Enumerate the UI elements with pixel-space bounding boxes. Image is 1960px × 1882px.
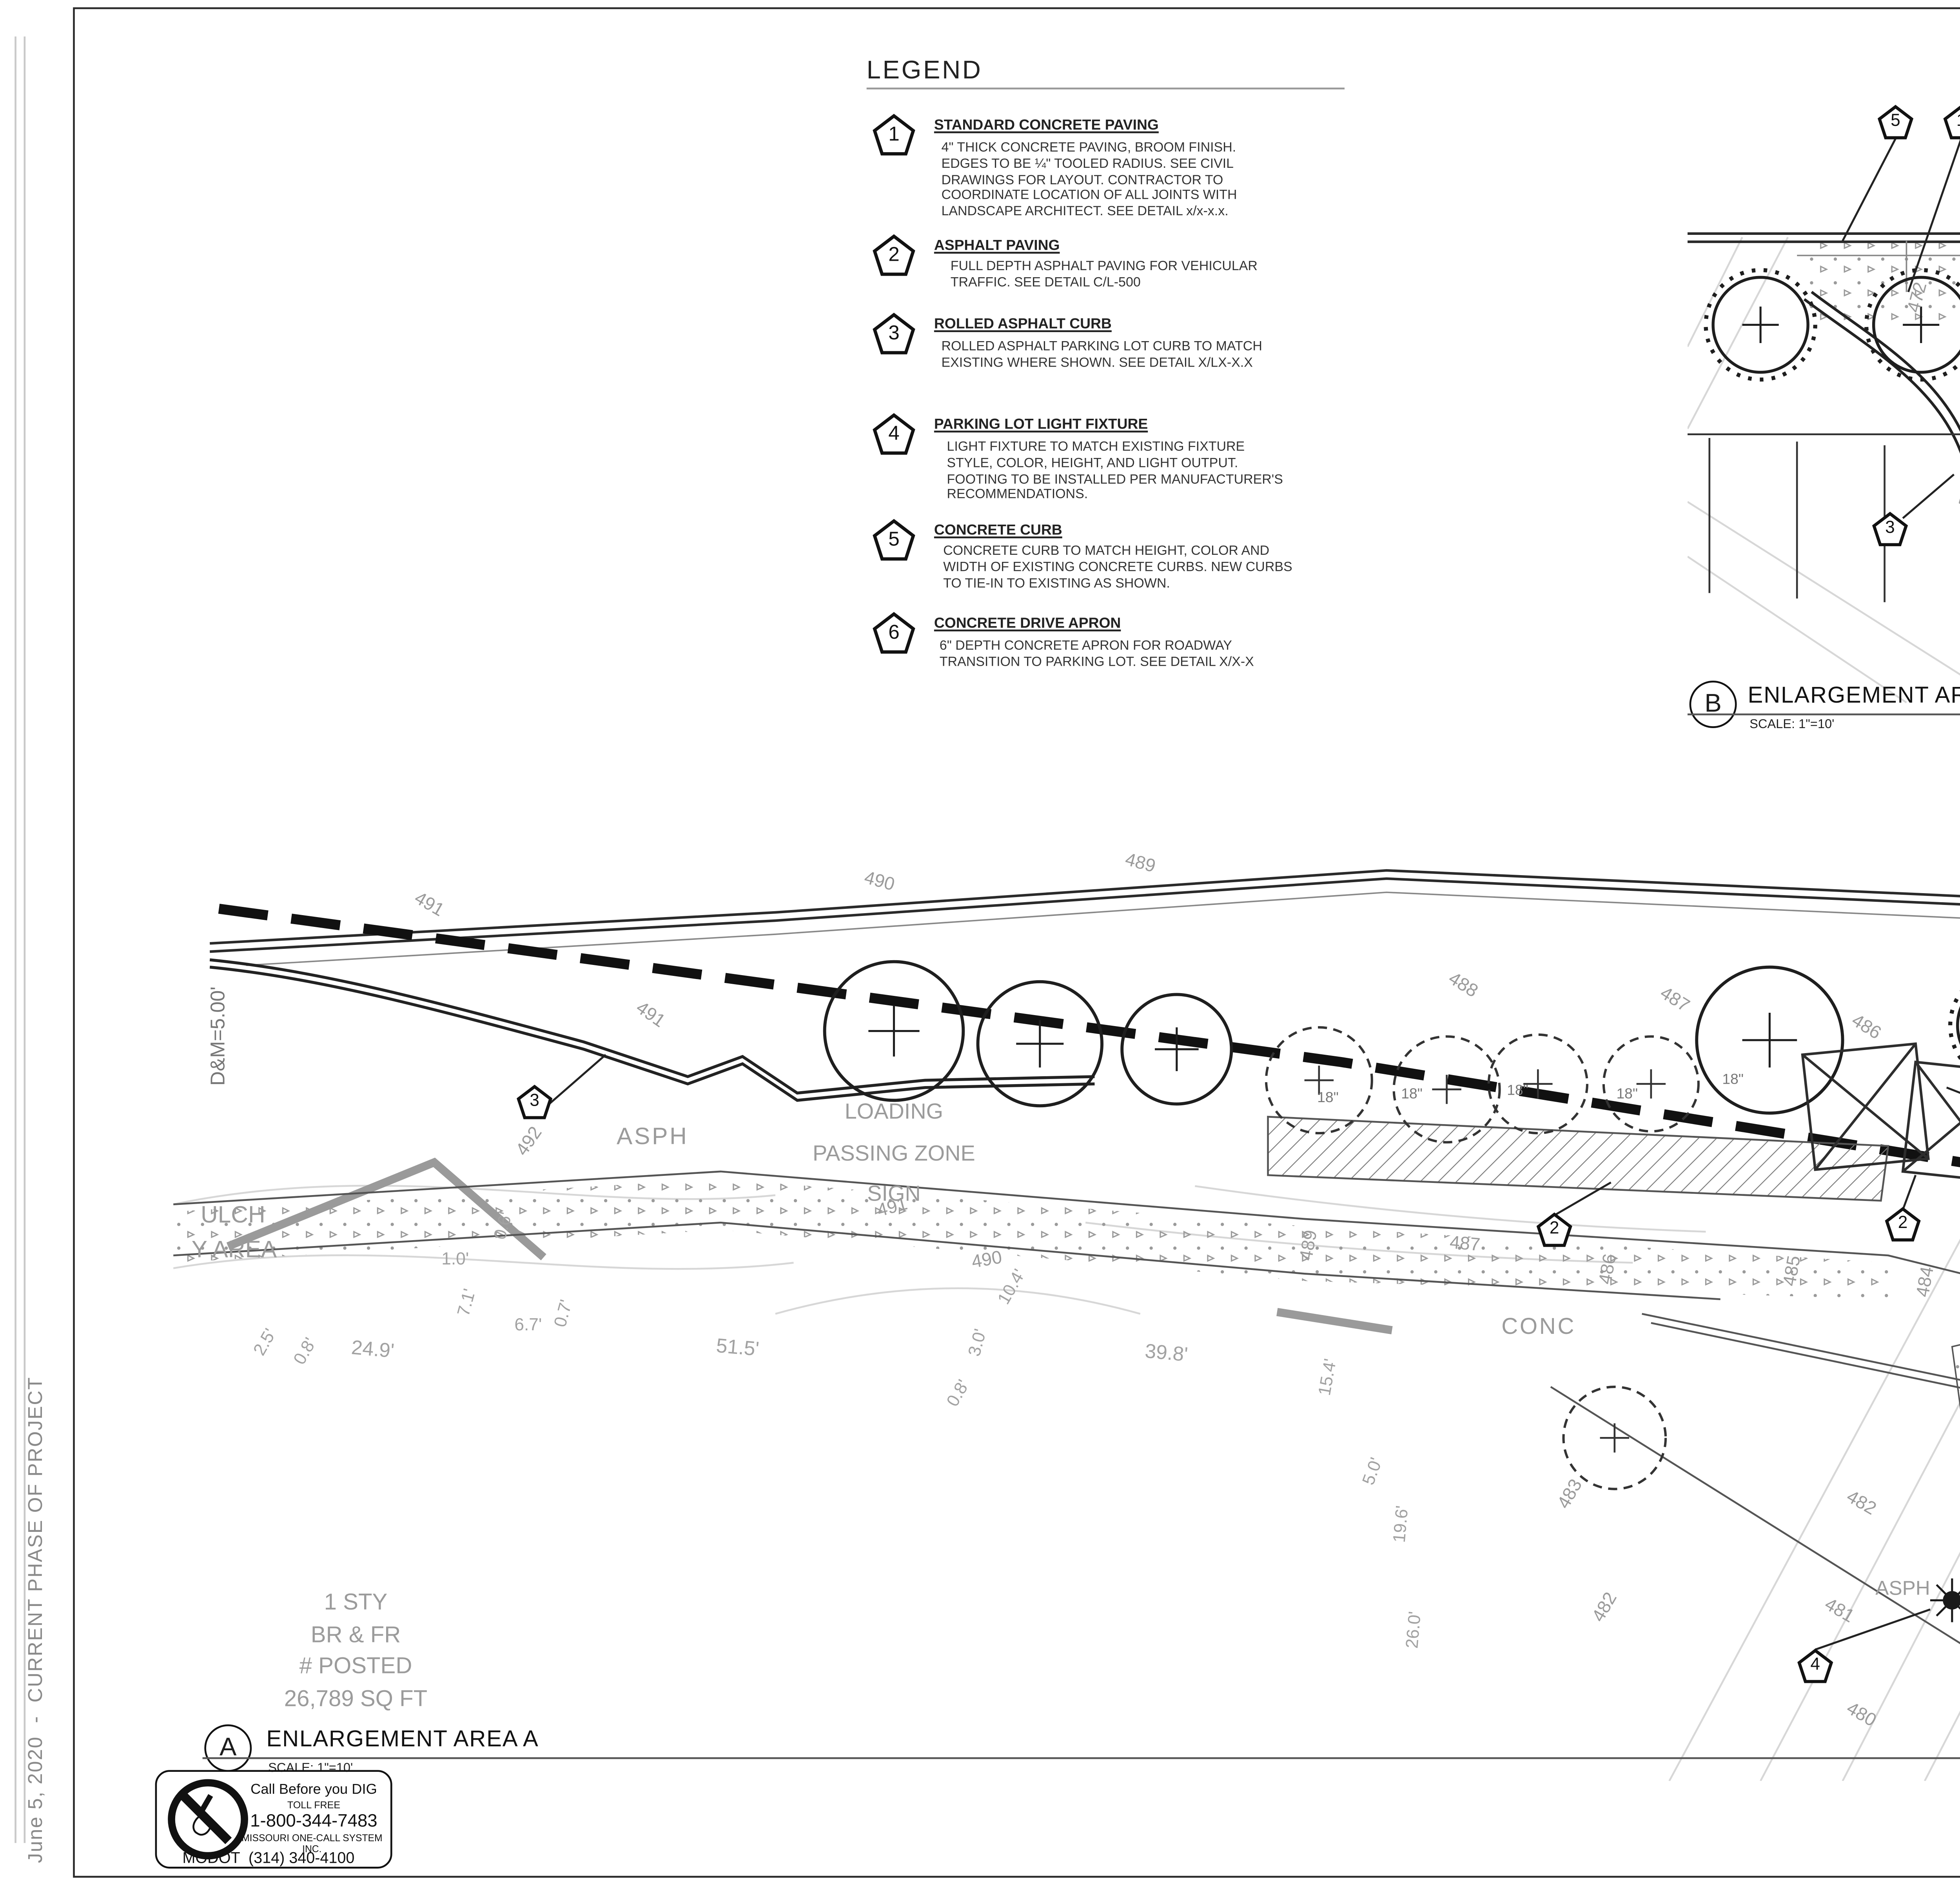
dimension-label: 1.0' (441, 1252, 469, 1269)
area-b-linework (1688, 109, 1960, 715)
existing-tree (1950, 969, 1960, 1086)
legend-item-title: PARKING LOT LIGHT FIXTURE (934, 416, 1148, 432)
legend-item-body: FULL DEPTH ASPHALT PAVING FOR VEHICULAR … (951, 259, 1258, 291)
keynote-pentagon: 4 (872, 412, 916, 456)
tree-caliper-label: 18" (1401, 1088, 1423, 1102)
legend-item-title: CONCRETE DRIVE APRON (934, 615, 1121, 631)
legend-item-body: LIGHT FIXTURE TO MATCH EXISTING FIXTURE … (947, 440, 1283, 504)
loading-zone-sign-label: LOADING PASSING ZONE SIGN (766, 1091, 1022, 1214)
contour-label: 487 (1449, 1235, 1481, 1256)
area-a-title: ENLARGEMENT AREA A (266, 1726, 539, 1752)
title-underline (203, 1757, 1960, 1759)
keynote-pentagon: 3 (516, 1084, 553, 1120)
deed-dim-label: D&M=5.00' (208, 986, 230, 1086)
legend-item-title: ROLLED ASPHALT CURB (934, 316, 1112, 332)
dimension-label: 26.0' (1405, 1611, 1425, 1649)
legend-title: LEGEND (867, 55, 983, 84)
legend-item-title: STANDARD CONCRETE PAVING (934, 117, 1159, 133)
dig-tollfree: TOLL FREE (239, 1800, 389, 1811)
tree-caliper-label: 18" (1616, 1088, 1638, 1102)
dimension-label: 39.8' (1144, 1343, 1188, 1367)
title-underline (1688, 714, 1960, 715)
modot-phone: MODOT (314) 340-4100 (182, 1849, 354, 1867)
legend-item-body: ROLLED ASPHALT PARKING LOT CURB TO MATCH… (941, 340, 1262, 372)
legend-item-body: CONCRETE CURB TO MATCH HEIGHT, COLOR AND… (943, 544, 1292, 592)
margin-date-note: June 5, 2020 - CURRENT PHASE OF PROJECT (25, 1377, 47, 1863)
dimension-label: 24.9' (350, 1339, 395, 1363)
edge-fineprint-line (15, 36, 16, 1843)
dimension-label: 51.5' (715, 1337, 760, 1361)
dig-title: Call Before you DIG (239, 1781, 389, 1797)
keynote-pentagon: 1 (1943, 104, 1960, 140)
dimension-label: 6.7' (514, 1317, 542, 1335)
keynote-pentagon: 3 (872, 312, 916, 356)
legend-item-body: 4" THICK CONCRETE PAVING, BROOM FINISH. … (941, 140, 1237, 221)
keynote-pentagon: 1 (872, 113, 916, 157)
keynote-pentagon: 2 (1885, 1206, 1921, 1243)
keynote-pentagon: 5 (1877, 104, 1914, 140)
surface-label-asph: ASPH (617, 1124, 688, 1148)
keynote-pentagon: 4 (1797, 1648, 1833, 1684)
keynote-pentagon: 5 (872, 518, 916, 562)
light-fixture-symbol (1930, 1579, 1960, 1622)
tree-caliper-label: 18" (1722, 1073, 1744, 1088)
surface-label-asph: ASPH (1875, 1580, 1930, 1600)
mulch-label: ULCH (201, 1203, 265, 1226)
legend-item-body: 6" DEPTH CONCRETE APRON FOR ROADWAY TRAN… (940, 639, 1254, 671)
building-label: 1 STY BR & FR # POSTED 26,789 SQ FT (246, 1588, 465, 1715)
plan-sheet: June 5, 2020 - CURRENT PHASE OF PROJECT … (0, 0, 1960, 1882)
sheet-canvas: June 5, 2020 - CURRENT PHASE OF PROJECT … (0, 0, 1960, 1881)
parking-stripes (1688, 434, 1960, 606)
area-b-title: ENLARGEMENT AREA B (1748, 683, 1960, 708)
keynote-pentagon: 2 (872, 234, 916, 278)
mulch-label: Y AREA (192, 1237, 277, 1261)
dimension-label: 19.6' (1392, 1505, 1412, 1543)
detail-callout-b: B (1690, 681, 1737, 728)
tree-caliper-label: 18" (1507, 1084, 1528, 1098)
tree-caliper-label: 18" (1317, 1091, 1339, 1106)
road-edge (1688, 234, 1960, 242)
keynote-pentagon: 2 (1536, 1212, 1573, 1248)
legend-item-title: ASPHALT PAVING (934, 237, 1060, 254)
detail-callout-a: A (204, 1724, 252, 1772)
keynote-pentagon: 6 (872, 611, 916, 655)
dig-phone: 1-800-344-7483 (239, 1812, 389, 1832)
keynote-pentagon: 3 (1872, 511, 1908, 547)
surface-label-conc: CONC (1501, 1316, 1576, 1339)
legend-item-title: CONCRETE CURB (934, 522, 1062, 538)
legend-underline (867, 87, 1345, 89)
area-b-scale: SCALE: 1"=10' (1749, 719, 1834, 732)
curb-curve (1804, 292, 1960, 663)
